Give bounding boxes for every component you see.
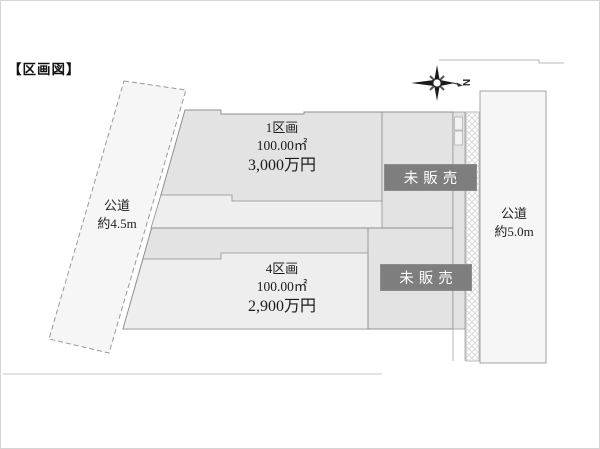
- right-road-label: 公道 約5.0m: [464, 205, 564, 241]
- plot-4-area: 100.00㎡: [212, 278, 352, 296]
- left-road-name: 公道: [67, 197, 167, 215]
- plot-4-price: 2,900万円: [212, 296, 352, 317]
- plot-1-label: 1区画 100.00㎡ 3,000万円: [212, 119, 352, 176]
- neighbor-boundary-line: [439, 60, 564, 63]
- plot-4-name: 4区画: [212, 260, 352, 278]
- right-road-name: 公道: [464, 205, 564, 223]
- left-road-width: 約4.5m: [67, 215, 167, 233]
- compass-icon: [411, 65, 463, 101]
- plot-1-name: 1区画: [212, 119, 352, 137]
- plot-1-area: 100.00㎡: [212, 137, 352, 155]
- plot-map-canvas: 【区画図】 N 公道 約4.5m 公道 約5.0m 1区画 100.00㎡ 3,…: [0, 0, 600, 449]
- left-road-label: 公道 約4.5m: [67, 197, 167, 233]
- utility-box-2: [455, 131, 463, 145]
- page-title: 【区画図】: [8, 58, 81, 78]
- right-road-width: 約5.0m: [464, 223, 564, 241]
- plot-1-price: 3,000万円: [212, 155, 352, 176]
- plot-4-label: 4区画 100.00㎡ 2,900万円: [212, 260, 352, 317]
- compass-north-label: N: [460, 79, 471, 86]
- unsold-badge-2: 未販売: [380, 264, 472, 291]
- utility-box-1: [455, 117, 463, 130]
- unsold-badge-1: 未販売: [384, 164, 477, 191]
